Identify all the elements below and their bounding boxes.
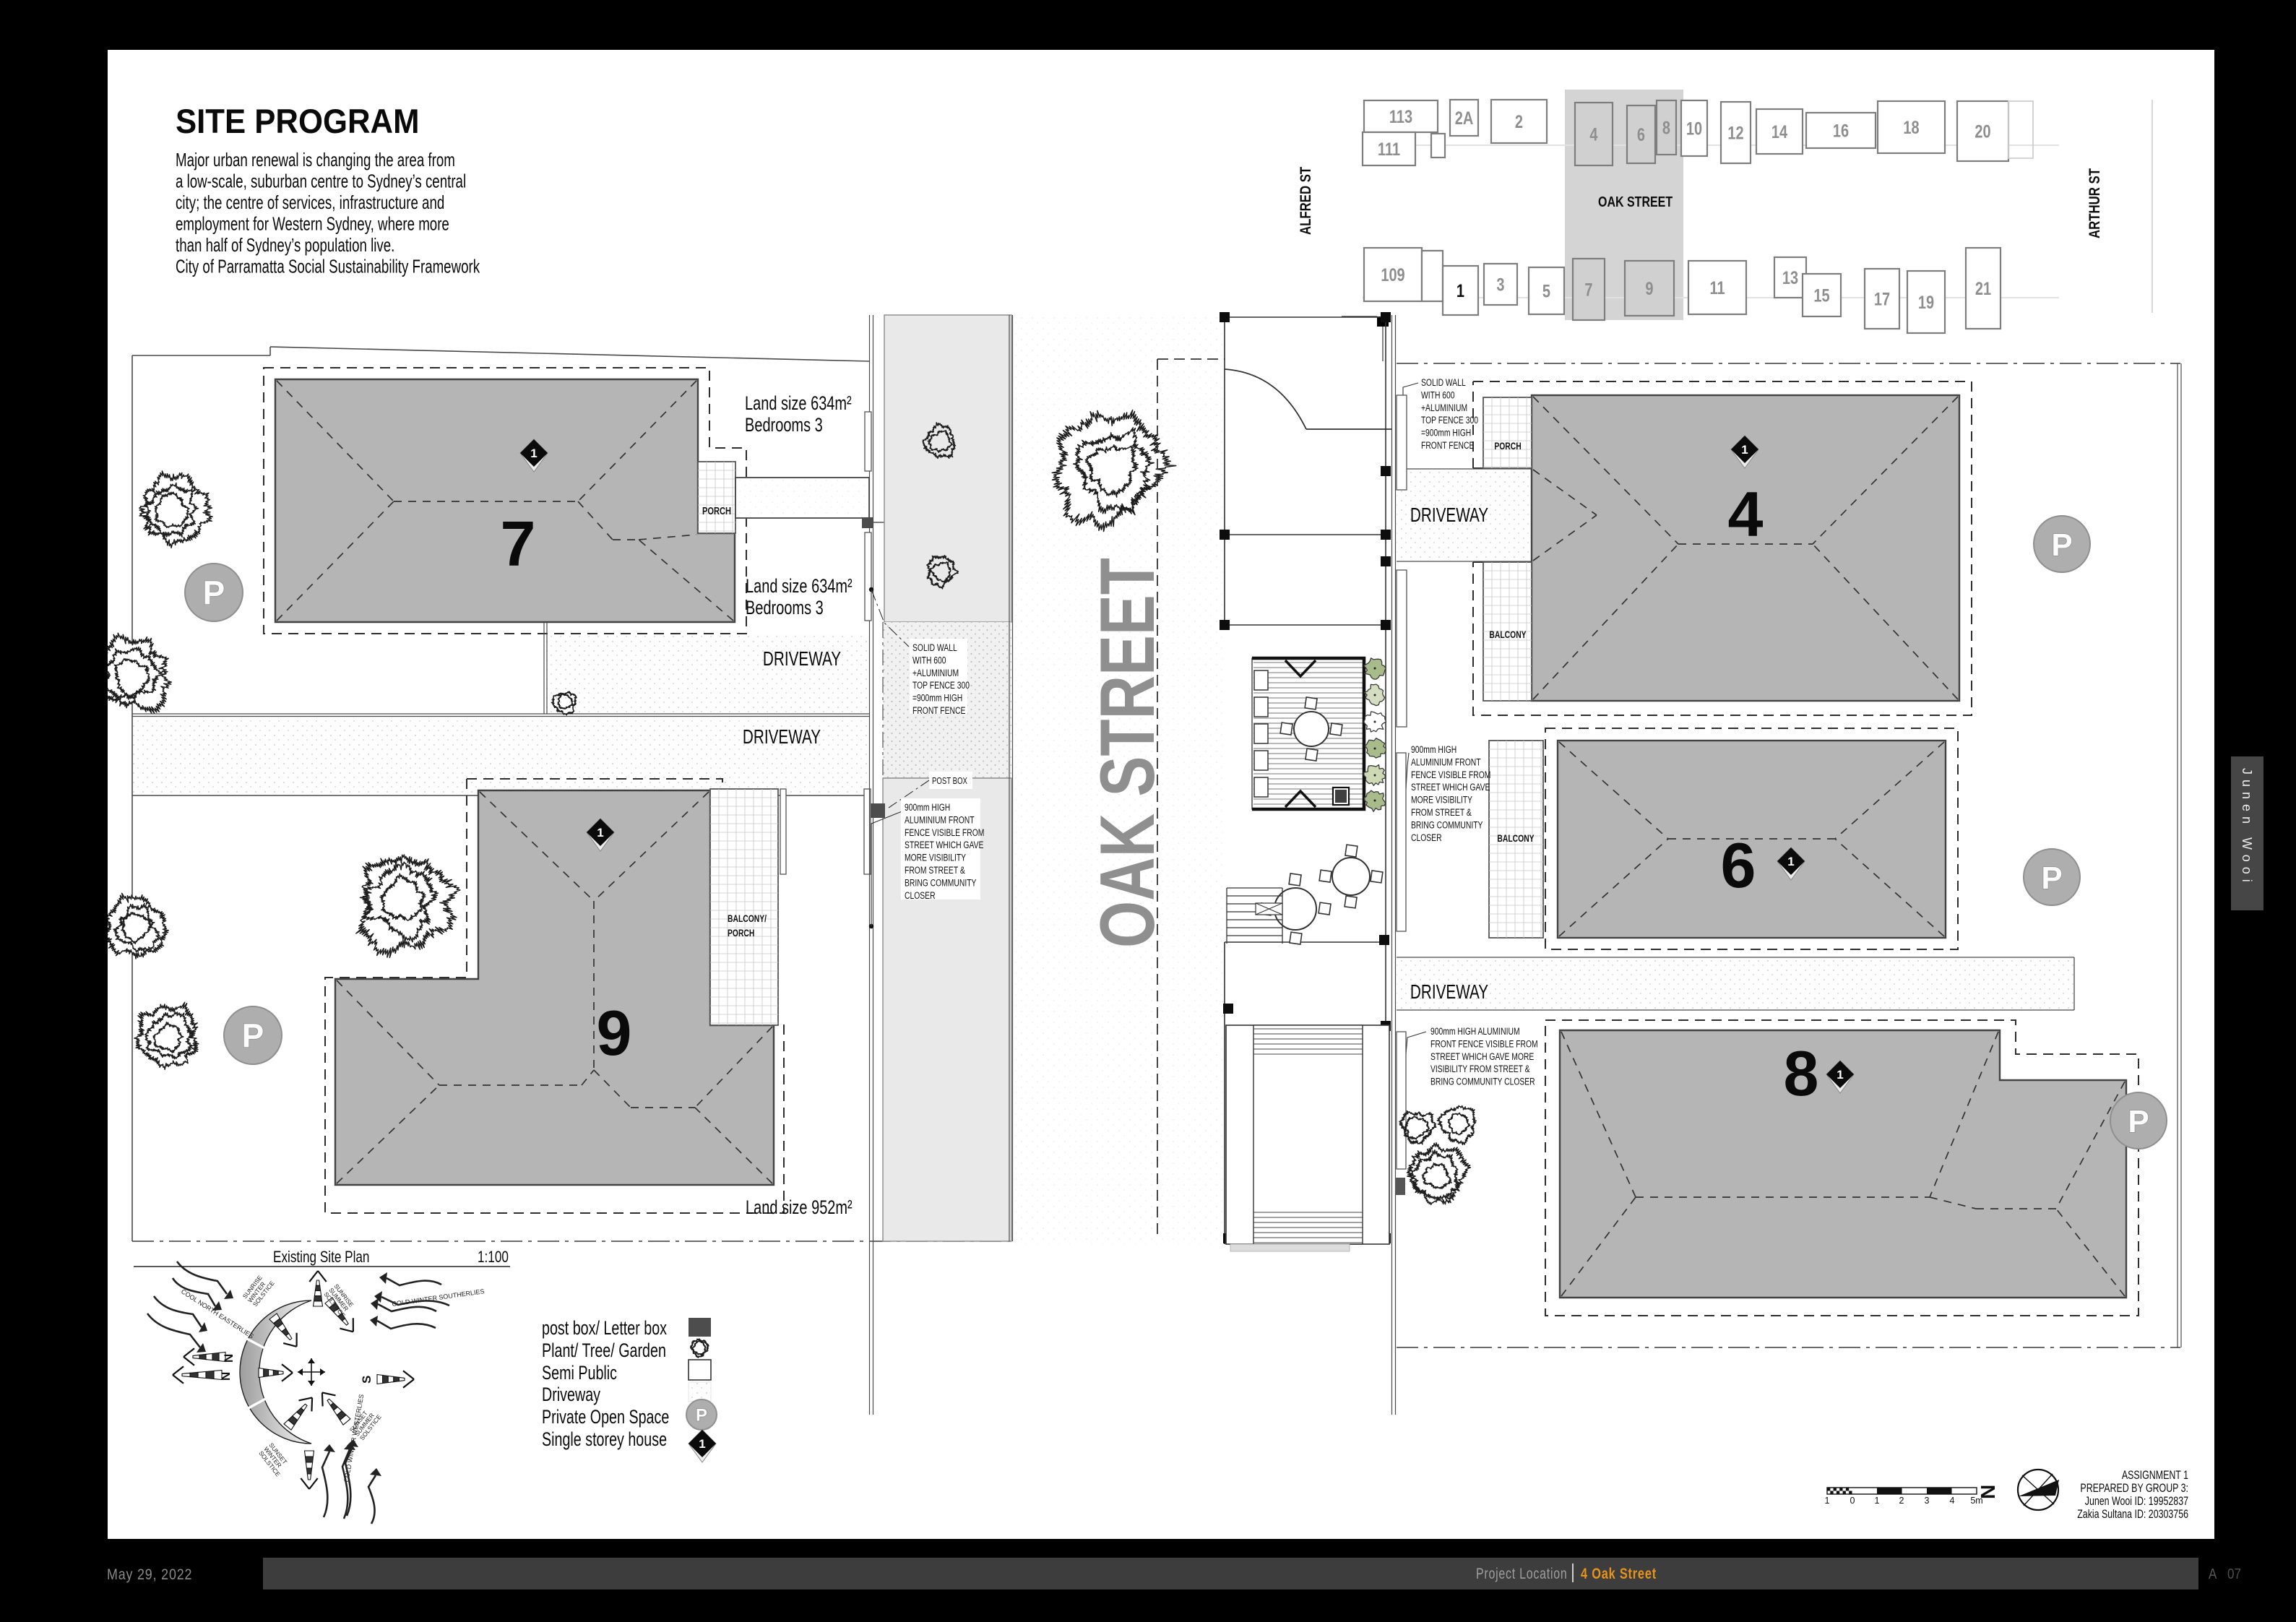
svg-text:1: 1 [530, 447, 537, 460]
svg-text:18: 18 [1903, 118, 1919, 138]
svg-text:4: 4 [1950, 1496, 1955, 1506]
svg-text:P: P [2041, 860, 2062, 896]
svg-text:17: 17 [1874, 289, 1890, 309]
svg-text:BALCONY: BALCONY [1489, 629, 1526, 640]
svg-text:16: 16 [1833, 121, 1849, 141]
svg-text:DRIVEWAY: DRIVEWAY [743, 726, 821, 749]
svg-text:4 Oak Street: 4 Oak Street [1581, 1565, 1657, 1582]
svg-text:DRIVEWAY: DRIVEWAY [1410, 504, 1488, 527]
svg-text:1:100: 1:100 [478, 1248, 509, 1267]
svg-text:10: 10 [1686, 118, 1702, 139]
svg-text:2: 2 [1515, 112, 1523, 132]
svg-text:DRIVEWAY: DRIVEWAY [1410, 981, 1488, 1004]
svg-text:N: N [222, 1354, 236, 1363]
svg-text:7: 7 [501, 508, 536, 579]
svg-text:11: 11 [1709, 278, 1725, 298]
svg-text:POST BOX: POST BOX [932, 777, 967, 787]
svg-text:113: 113 [1389, 107, 1412, 127]
svg-text:1: 1 [1875, 1496, 1880, 1506]
svg-text:Project Location: Project Location [1476, 1565, 1568, 1582]
svg-text:1: 1 [1825, 1496, 1830, 1506]
svg-text:Land size 952m²: Land size 952m² [746, 1196, 853, 1219]
svg-text:6: 6 [1721, 829, 1756, 901]
svg-text:P: P [696, 1406, 707, 1425]
svg-text:5: 5 [1542, 281, 1550, 301]
svg-text:1: 1 [699, 1437, 705, 1451]
svg-text:1: 1 [1456, 281, 1464, 301]
svg-text:Existing Site Plan: Existing Site Plan [273, 1248, 369, 1267]
svg-text:Driveway: Driveway [542, 1384, 600, 1406]
svg-text:8: 8 [1662, 118, 1670, 138]
svg-text:PORCH: PORCH [702, 504, 731, 517]
svg-text:2A: 2A [1455, 108, 1474, 129]
svg-text:7: 7 [1584, 280, 1592, 300]
svg-text:Private Open Space: Private Open Space [542, 1407, 669, 1428]
svg-text:Semi Public: Semi Public [542, 1363, 617, 1384]
svg-text:07: 07 [2227, 1566, 2241, 1582]
svg-text:12: 12 [1727, 123, 1743, 143]
svg-text:9: 9 [1645, 279, 1653, 299]
svg-text:Plant/ Tree/ Garden: Plant/ Tree/ Garden [542, 1340, 666, 1362]
svg-text:A: A [2209, 1566, 2217, 1582]
svg-text:0: 0 [1850, 1496, 1855, 1506]
svg-text:N: N [219, 1372, 233, 1381]
svg-text:1: 1 [1787, 855, 1794, 868]
svg-text:1: 1 [1837, 1068, 1843, 1082]
svg-text:Single storey house: Single storey house [542, 1429, 667, 1451]
svg-text:2: 2 [1899, 1496, 1904, 1506]
svg-text:19: 19 [1918, 293, 1934, 313]
svg-text:DRIVEWAY: DRIVEWAY [763, 648, 841, 670]
svg-text:111: 111 [1378, 139, 1400, 160]
svg-text:4: 4 [1728, 478, 1764, 550]
svg-text:20: 20 [1975, 121, 1990, 142]
svg-text:15: 15 [1813, 285, 1829, 306]
svg-text:S: S [360, 1376, 374, 1384]
svg-text:Major urban renewal is changin: Major urban renewal is changing the area… [176, 149, 480, 277]
svg-text:P: P [2051, 527, 2072, 563]
svg-text:6: 6 [1637, 125, 1645, 145]
svg-text:P: P [203, 574, 225, 612]
svg-text:109: 109 [1381, 265, 1404, 285]
svg-text:ALFRED ST: ALFRED ST [1298, 166, 1314, 235]
svg-text:May 29, 2022: May 29, 2022 [107, 1566, 192, 1584]
svg-text:14: 14 [1771, 122, 1788, 142]
svg-text:21: 21 [1975, 279, 1991, 299]
svg-text:ARTHUR ST: ARTHUR ST [2086, 168, 2103, 238]
svg-text:P: P [2128, 1104, 2149, 1139]
svg-text:N: N [1977, 1485, 1999, 1499]
svg-text:P: P [242, 1017, 264, 1055]
svg-text:post box/ Letter box: post box/ Letter box [542, 1318, 667, 1340]
svg-text:4: 4 [1589, 124, 1597, 144]
svg-text:SITE PROGRAM: SITE PROGRAM [176, 103, 419, 141]
svg-text:BALCONY: BALCONY [1497, 832, 1534, 844]
svg-text:OAK STREET: OAK STREET [1598, 194, 1673, 210]
svg-text:PORCH: PORCH [1494, 440, 1521, 452]
svg-text:1: 1 [1741, 443, 1748, 457]
svg-text:Junen Wooi: Junen Wooi [2240, 768, 2254, 887]
svg-text:3: 3 [1925, 1496, 1930, 1506]
svg-text:8: 8 [1784, 1038, 1819, 1109]
svg-text:13: 13 [1782, 268, 1798, 288]
svg-text:9: 9 [597, 997, 632, 1069]
svg-text:3: 3 [1496, 275, 1504, 295]
svg-text:1: 1 [597, 826, 603, 840]
